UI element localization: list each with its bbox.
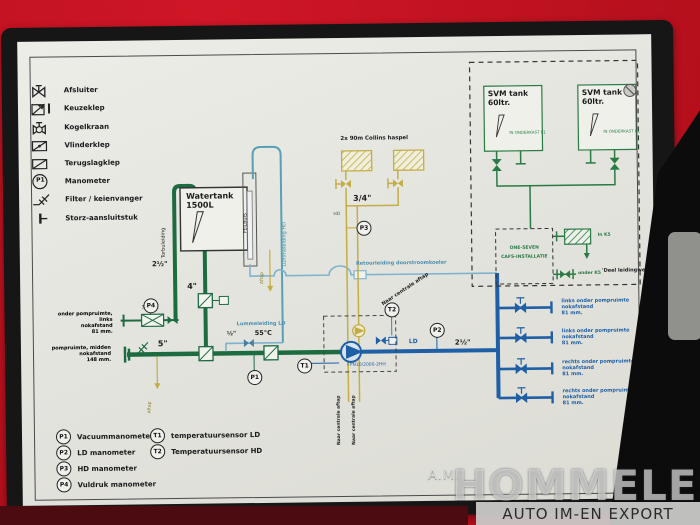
butterfly-valve-icon <box>30 137 54 153</box>
p1-label: Vacuummanometer <box>77 432 154 441</box>
watertank-capacity: 1500L <box>186 201 213 210</box>
pump-model-label: FPN10/2000-2HH <box>347 362 386 368</box>
gauge-t2: T2 <box>384 302 399 317</box>
p4-badge: P4 <box>57 477 72 492</box>
diagram-panel: Afsluiter Keuzeklep Kogelkraan Vlinderkl… <box>17 34 657 506</box>
panel-frame: Afsluiter Keuzeklep Kogelkraan Vlinderkl… <box>1 20 679 520</box>
legend-item: P1 Manometer <box>31 172 110 190</box>
p2-label: LD manometer <box>77 448 135 457</box>
suction-size-label: 4" <box>187 282 197 291</box>
fill-line-1: onder pompruimte, links <box>50 311 112 324</box>
shutoff-valve-icon <box>30 82 54 98</box>
in-k5-label: In K5 <box>598 233 611 238</box>
onder-k5-label: onder K5 <box>578 271 601 276</box>
outlet-label-3: rechts onder pompruimte nokafstand 81 mm… <box>562 358 634 377</box>
svm-tank2-capacity: 60ltr. <box>582 96 604 105</box>
p3-badge: P3 <box>56 461 71 476</box>
legend-label: Keuzeklep <box>64 103 105 111</box>
main-size-label: 5" <box>158 339 168 348</box>
p2-badge: P2 <box>56 445 71 460</box>
gauge-t1: T1 <box>297 358 312 373</box>
p1-badge: P1 <box>56 429 71 444</box>
one-seven-label: ONE-SEVEN CAFS-INSTALLATIE <box>496 243 553 262</box>
watermark-tagline: AUTO IM-EN EXPORT <box>476 502 700 525</box>
svm-tank1-note: IN ONDERKAST K1 <box>509 130 546 135</box>
legend-p3-row: P3 HD manometer <box>56 460 137 476</box>
tank-aftap-label: Aftap <box>260 254 266 284</box>
selector-valve-icon <box>30 100 54 116</box>
hose-reels-label: 2x 90m Collins haspel <box>340 135 408 142</box>
suction-line-3: 148 mm. <box>49 357 111 364</box>
legend-item: Kogelkraan <box>30 118 109 136</box>
fill-line-3: 81 mm. <box>51 329 113 336</box>
svm-tank1-capacity: 60ltr. <box>488 98 510 107</box>
outlet-label-2: links onder pompruimte nokafstand 81 mm. <box>562 327 630 346</box>
outlet3-line3: 81 mm. <box>562 370 634 377</box>
lower-body-strip <box>0 506 468 525</box>
storz-icon <box>31 210 55 226</box>
one-seven-line2: CAFS-INSTALLATIE <box>501 254 548 260</box>
legend-p4-row: P4 Vuldruk manometer <box>57 476 157 492</box>
legend-p1-row: P1 Vacuummanometer <box>56 428 154 444</box>
lummeleiding-hd-label: Lummeleiding HD <box>282 203 289 267</box>
legend-item: Keuzeklep <box>30 99 105 117</box>
legend-t1-row: T1 temperatuursensor LD <box>150 427 260 443</box>
watertank-name: Watertank <box>186 191 233 201</box>
retour-label: Retourleiding doorstroomkoeler <box>356 261 447 268</box>
gauge-icon: P1 <box>31 173 55 189</box>
p3-label: HD manometer <box>77 464 137 473</box>
legend-t2-row: T2 Temperatuursensor HD <box>150 443 262 459</box>
naar-centrale-aftap-1: Naar centrale aftap <box>337 405 343 445</box>
svm-tank1-title: SVM tank 60ltr. <box>488 90 528 108</box>
suction-connection-label: pompruimte, midden nokafstand 148 mm. <box>49 345 111 364</box>
legend-label: Terugslagklep <box>65 158 120 167</box>
naar-centrale-aftap-2: Naar centrale aftap <box>352 405 358 445</box>
gauge-p3: P3 <box>356 221 371 236</box>
gauge-p4: P4 <box>143 298 158 313</box>
line-aftap-label: Aftap <box>147 383 153 413</box>
gauge-p2: P2 <box>430 323 445 338</box>
legend-item: Filter / keienvanger <box>31 189 143 207</box>
blue-valve-symbols <box>515 298 526 402</box>
legend-item: Terugslagklep <box>31 154 120 172</box>
outlet-label-1: links onder pompruimte nokafstand 81 mm. <box>561 297 629 316</box>
lummeleiding-ld-label: Lummeleiding LD <box>237 322 286 328</box>
hd-size-label: 3/4" <box>353 194 371 203</box>
ld-line-label: LD <box>409 339 418 346</box>
ld-size-label: ½" <box>227 331 236 338</box>
check-valve-icon <box>31 155 55 171</box>
hinge-panel <box>668 232 700 340</box>
outlet-label-4: rechts onder pompruimte nokafstand 81 mm… <box>562 387 634 406</box>
t2-label: Temperatuursensor HD <box>171 446 262 455</box>
fill-connection-label: onder pompruimte, links nokafstand 81 mm… <box>50 311 112 336</box>
gauge-p1: P1 <box>247 370 262 385</box>
legend-label: Afsluiter <box>64 85 98 93</box>
gauge-badge: P1 <box>33 176 48 183</box>
t1-badge: T1 <box>150 428 165 443</box>
hd-label: HD <box>333 212 340 217</box>
legend-item: Vlinderklep <box>30 136 109 154</box>
filter-icon <box>31 191 55 207</box>
peilbuis-label: PEILBUIS <box>243 191 257 255</box>
t1-label: temperatuursensor LD <box>171 430 260 439</box>
legend-label: Filter / keienvanger <box>65 194 142 203</box>
p4-label: Vuldruk manometer <box>78 480 157 489</box>
svm-tank2-note: IN ONDERKAST K1 <box>603 129 640 134</box>
legend-label: Vlinderklep <box>64 140 109 149</box>
legend-label: Manometer <box>65 176 110 185</box>
ball-valve-icon <box>30 119 54 135</box>
outlet1-line3: 81 mm. <box>562 309 630 316</box>
outlet4-line3: 81 mm. <box>563 399 635 406</box>
legend-item: Afsluiter <box>30 81 98 99</box>
legend-p2-row: P2 LD manometer <box>56 445 135 461</box>
fill-size-label: 2½" <box>152 260 168 268</box>
one-seven-line1: ONE-SEVEN <box>510 246 539 251</box>
legend-label: Kogelkraan <box>64 122 109 131</box>
outlet2-line3: 81 mm. <box>562 339 630 346</box>
watertank-title: Watertank 1500L <box>186 191 234 210</box>
legend-item: Storz-aansluitstuk <box>31 208 138 226</box>
legend-label: Storz-aansluitstuk <box>65 213 138 222</box>
torbuleiding-label: Torbuleiding <box>161 206 167 258</box>
temp-label: 55°C <box>255 330 272 338</box>
t2-badge: T2 <box>150 444 165 459</box>
ld-size2-label: 2½" <box>455 338 471 346</box>
svm-tank2-title: SVM tank 60ltr. <box>582 89 622 107</box>
